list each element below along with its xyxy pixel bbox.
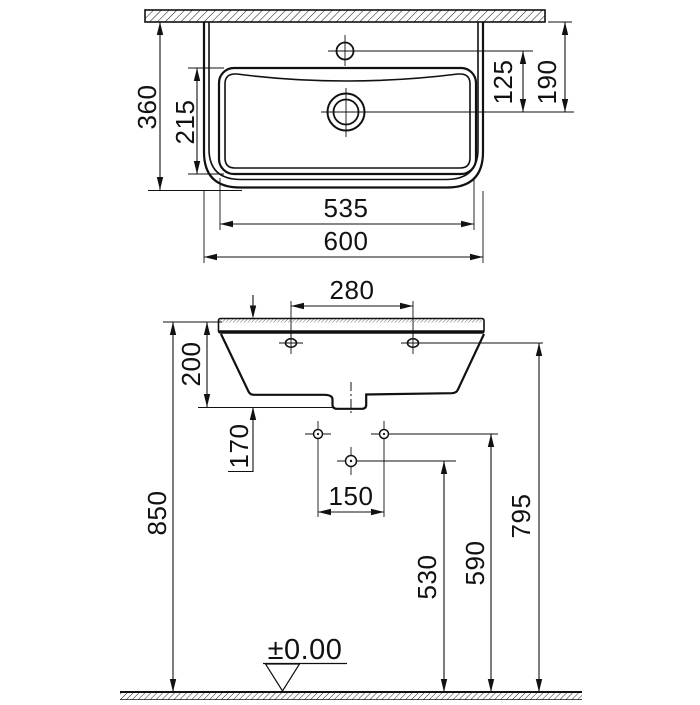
fixing-holes [279, 333, 543, 354]
dim-label-850: 850 [142, 491, 172, 536]
dim-label-280: 280 [330, 275, 375, 305]
basin-bowl [219, 68, 476, 174]
dim-supply-height: 590 [460, 434, 494, 692]
dim-label-795: 795 [506, 494, 536, 539]
dim-drain-height: 530 [412, 461, 447, 692]
floor-level-label: ±0.00 [268, 634, 343, 666]
dim-outlet-offset: 170 [224, 407, 256, 472]
dim-supply-hole-spacing: 150 [318, 481, 384, 515]
dim-bowl-depth: 215 [170, 68, 224, 174]
floor-section [120, 692, 582, 700]
wall-section [145, 10, 545, 22]
dim-label-215: 215 [170, 100, 200, 145]
dim-label-125: 125 [488, 60, 518, 105]
front-view: 280 200 850 170 [120, 275, 582, 700]
technical-drawing-page: 360 215 125 190 [0, 0, 700, 700]
floor-level-marker: ±0.00 [263, 634, 347, 691]
dim-bowl-width: 535 [220, 178, 474, 230]
basin-body-outline [221, 334, 484, 409]
dim-label-600: 600 [324, 226, 369, 256]
basin-outer-shell [204, 22, 483, 188]
dim-label-530: 530 [412, 555, 442, 600]
dim-wall-to-drain: 190 [532, 22, 572, 112]
dim-label-200: 200 [176, 342, 206, 387]
dim-fixing-hole-spacing: 280 [291, 275, 413, 338]
drain-stub-hole [337, 447, 456, 475]
dim-fixing-hole-height: 795 [506, 343, 542, 692]
rim-reference-arrow [250, 295, 256, 319]
dim-rim-height: 850 [142, 322, 176, 692]
dim-label-170: 170 [224, 424, 254, 469]
dim-label-190: 190 [532, 60, 562, 105]
dim-label-590: 590 [460, 541, 490, 586]
basin-rim [219, 319, 485, 334]
dim-label-360: 360 [132, 85, 162, 130]
top-view: 360 215 125 190 [132, 10, 574, 263]
dim-label-535: 535 [324, 193, 369, 223]
washbasin-technical-drawing: 360 215 125 190 [0, 0, 700, 700]
dim-tap-to-drain: 125 [488, 51, 526, 112]
dim-label-150: 150 [329, 481, 374, 511]
